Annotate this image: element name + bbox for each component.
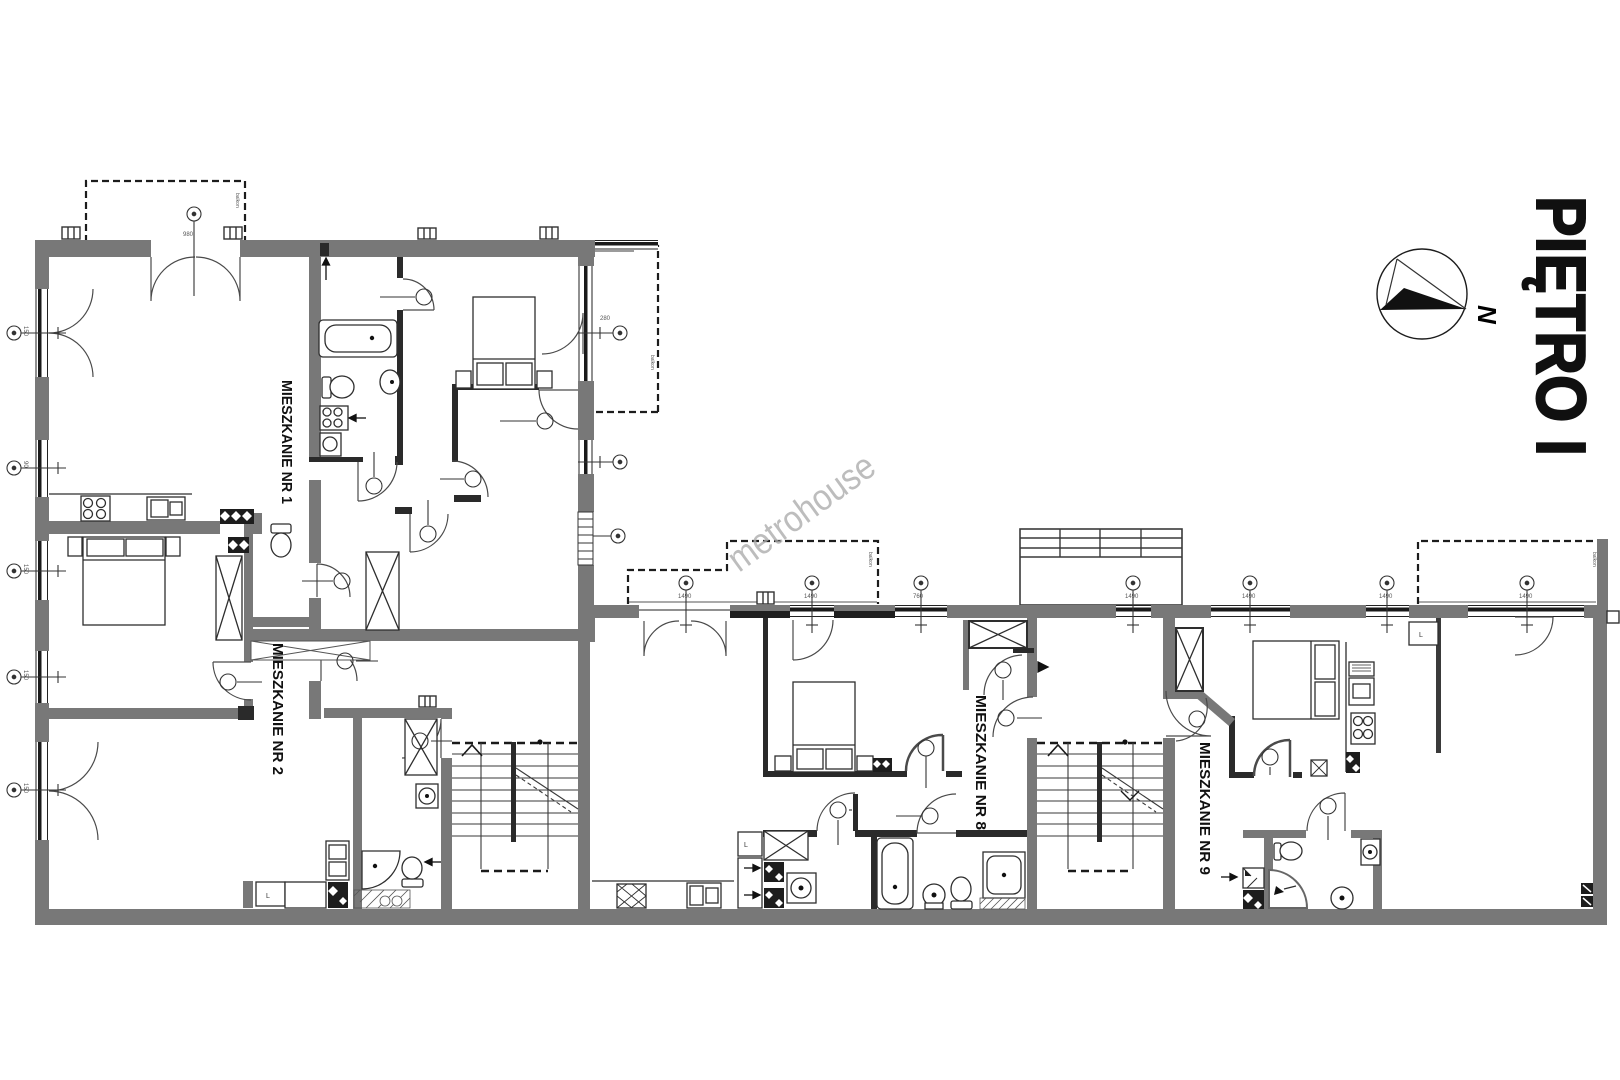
svg-text:1490: 1490 bbox=[1379, 594, 1393, 600]
svg-text:150: 150 bbox=[22, 564, 28, 575]
svg-text:balkon: balkon bbox=[234, 193, 240, 208]
svg-text:1490: 1490 bbox=[1519, 594, 1533, 600]
svg-text:N: N bbox=[1472, 305, 1502, 325]
svg-text:1490: 1490 bbox=[678, 594, 692, 600]
svg-text:L: L bbox=[744, 842, 748, 849]
svg-text:balkon: balkon bbox=[649, 355, 655, 370]
svg-text:150: 150 bbox=[22, 783, 28, 794]
svg-text:760: 760 bbox=[913, 594, 924, 600]
svg-text:L: L bbox=[1419, 632, 1423, 639]
svg-text:1490: 1490 bbox=[804, 594, 818, 600]
svg-text:balkon: balkon bbox=[1591, 552, 1597, 567]
svg-text:90: 90 bbox=[22, 461, 28, 468]
svg-text:1490: 1490 bbox=[1125, 594, 1139, 600]
svg-text:MIESZKANIE NR 9: MIESZKANIE NR 9 bbox=[1196, 742, 1212, 875]
svg-text:150: 150 bbox=[22, 326, 28, 337]
svg-text:MIESZKANIE NR 2: MIESZKANIE NR 2 bbox=[269, 643, 285, 775]
svg-text:1490: 1490 bbox=[1242, 594, 1256, 600]
svg-text:PIĘTRO I: PIĘTRO I bbox=[1522, 196, 1600, 456]
svg-text:980: 980 bbox=[183, 232, 194, 238]
svg-text:balkon: balkon bbox=[867, 552, 873, 567]
svg-text:280: 280 bbox=[600, 316, 611, 322]
svg-text:MIESZKANIE NR 8: MIESZKANIE NR 8 bbox=[972, 695, 988, 830]
svg-text:150: 150 bbox=[22, 670, 28, 681]
svg-text:L: L bbox=[266, 893, 270, 900]
svg-text:MIESZKANIE NR 1: MIESZKANIE NR 1 bbox=[278, 380, 294, 504]
